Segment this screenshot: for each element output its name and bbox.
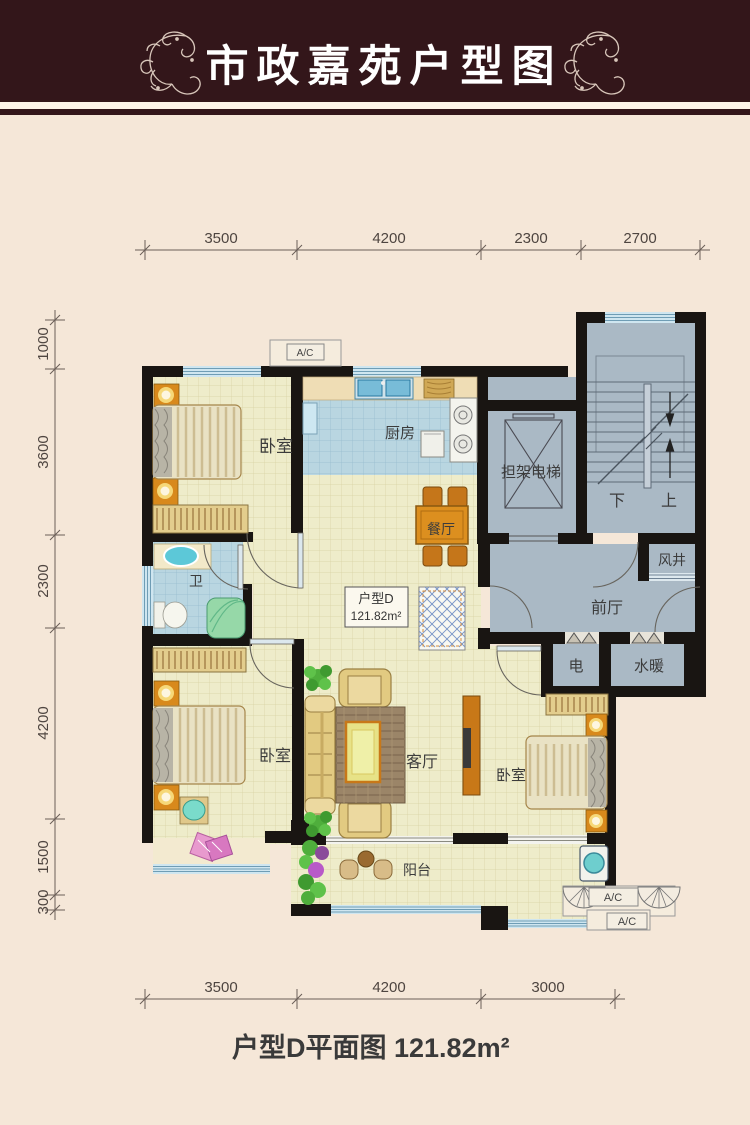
- svg-text:3600: 3600: [35, 435, 52, 468]
- svg-text:阳台: 阳台: [403, 862, 431, 878]
- svg-text:3500: 3500: [204, 230, 237, 247]
- svg-text:担架电梯: 担架电梯: [501, 464, 561, 481]
- svg-text:水暖: 水暖: [634, 658, 664, 675]
- svg-text:风井: 风井: [658, 552, 686, 568]
- svg-text:3500: 3500: [204, 979, 237, 996]
- svg-text:户型D平面图 121.82m²: 户型D平面图 121.82m²: [232, 1032, 510, 1063]
- svg-text:卧室: 卧室: [496, 767, 526, 784]
- svg-text:客厅: 客厅: [406, 753, 438, 771]
- svg-text:3000: 3000: [531, 979, 564, 996]
- svg-text:2700: 2700: [623, 230, 656, 247]
- svg-text:市政嘉苑户型图: 市政嘉苑户型图: [206, 43, 563, 91]
- svg-text:上: 上: [661, 492, 677, 510]
- svg-text:4200: 4200: [35, 706, 52, 739]
- svg-text:卧室: 卧室: [259, 437, 293, 456]
- svg-text:2300: 2300: [35, 564, 52, 597]
- svg-text:卧室: 卧室: [259, 747, 291, 765]
- svg-text:餐厅: 餐厅: [427, 521, 455, 537]
- svg-text:厨房: 厨房: [385, 425, 415, 442]
- svg-text:121.82m²: 121.82m²: [351, 609, 402, 623]
- svg-text:A/C: A/C: [297, 348, 314, 359]
- svg-text:户型D: 户型D: [358, 591, 393, 606]
- svg-text:电: 电: [568, 658, 583, 675]
- svg-text:前厅: 前厅: [591, 599, 623, 617]
- svg-text:A/C: A/C: [604, 892, 622, 904]
- svg-text:4200: 4200: [372, 979, 405, 996]
- svg-text:下: 下: [609, 493, 625, 510]
- svg-text:300: 300: [35, 889, 52, 914]
- svg-text:1000: 1000: [35, 327, 52, 360]
- svg-text:A/C: A/C: [618, 916, 636, 928]
- svg-text:1500: 1500: [35, 840, 52, 873]
- svg-text:2300: 2300: [514, 230, 547, 247]
- svg-text:卫: 卫: [189, 573, 203, 589]
- svg-text:4200: 4200: [372, 230, 405, 247]
